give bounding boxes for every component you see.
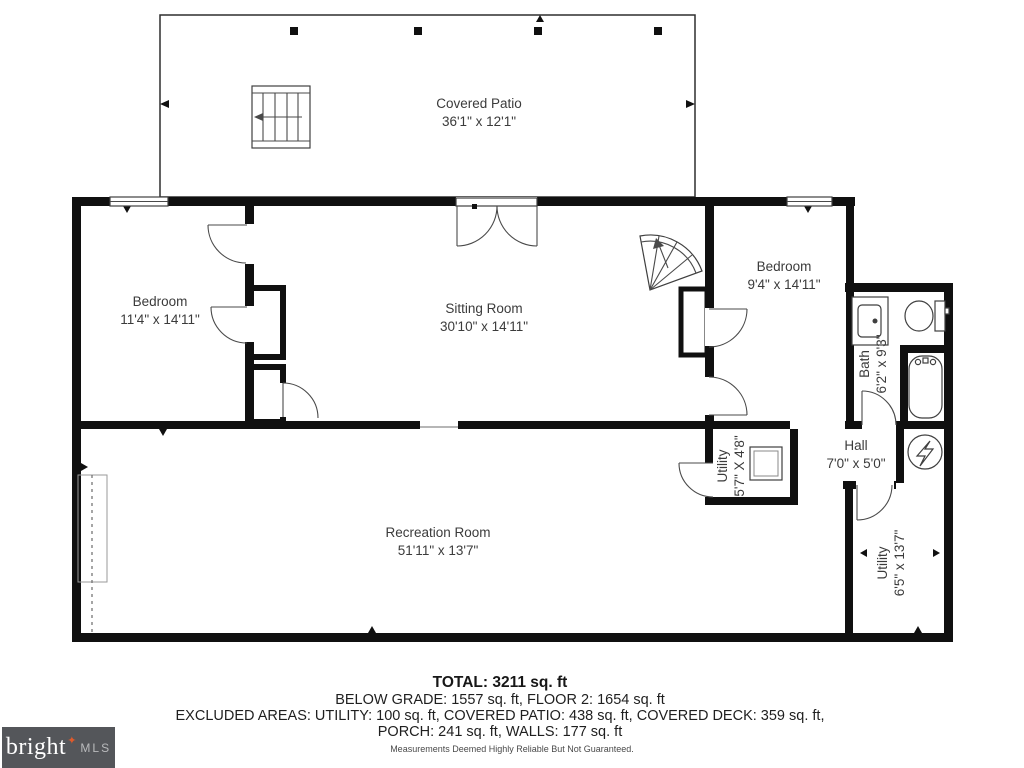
room-name: Covered Patio [436,96,522,111]
room-name: Recreation Room [385,525,490,540]
logo-star-icon: ✦ [67,734,76,747]
area-summary: TOTAL: 3211 sq. ft BELOW GRADE: 1557 sq.… [176,674,825,754]
room-name: Bedroom [133,294,188,309]
hall-label: Hall 7'0" x 5'0" [826,438,885,471]
room-dims: 9'4" x 14'11" [747,277,820,292]
bath-door-icon [862,391,896,429]
sitting-room-label: Sitting Room 30'10" x 14'11" [440,301,528,334]
porch-walls-text: PORCH: 241 sq. ft, WALLS: 177 sq. ft [378,724,622,740]
recreation-room-label: Recreation Room 51'11" x 13'7" [385,525,490,558]
washer-icon [750,447,782,480]
room-name: Hall [844,438,867,453]
room-dims: 11'4" x 14'11" [120,312,200,327]
floor-plan-drawing: Covered Patio 36'1" x 12'1" [0,0,1024,768]
utility-small-door-icon [679,463,713,497]
room-name: Bath [857,350,872,378]
utility-small-label: Utility 5'7" X 4'8" [715,435,747,496]
logo-suffix-text: MLS [80,741,111,755]
disclaimer-text: Measurements Deemed Highly Reliable But … [390,744,634,754]
room-dims: 6'5" x 13'7" [892,530,907,597]
bedroom-left-label: Bedroom 11'4" x 14'11" [120,294,200,327]
bedroom-right-label: Bedroom 9'4" x 14'11" [747,259,820,292]
walls [72,197,953,642]
patio-post [414,27,422,35]
room-dims: 51'11" x 13'7" [398,543,479,558]
floor-plan-page: Covered Patio 36'1" x 12'1" [0,0,1024,768]
grade-area-text: BELOW GRADE: 1557 sq. ft, FLOOR 2: 1654 … [335,692,665,708]
room-name: Utility [875,546,890,579]
closet [251,367,318,422]
patio-post [534,27,542,35]
room-name: Sitting Room [445,301,522,316]
window [110,197,168,206]
toilet-icon [905,301,949,331]
excluded-area-text: EXCLUDED AREAS: UTILITY: 100 sq. ft, COV… [176,708,825,724]
closet [681,289,707,355]
room-dims: 36'1" x 12'1" [442,114,516,129]
room-dims: 5'7" X 4'8" [732,435,747,496]
bedroom-right-door-icon [705,377,747,415]
winder-stairs-icon [640,235,702,290]
room-name: Utility [715,449,730,482]
stairs-icon [252,86,310,148]
bright-mls-logo: bright✦MLS [2,727,115,768]
logo-brand-text: bright [6,734,66,761]
patio-post [290,27,298,35]
covered-patio-label: Covered Patio 36'1" x 12'1" [436,96,522,129]
french-door-icon [456,197,537,246]
room-dims: 6'2" x 9'3" [874,334,889,393]
total-area-text: TOTAL: 3211 sq. ft [433,674,568,691]
utility-large-label: Utility 6'5" x 13'7" [875,530,907,597]
room-name: Bedroom [757,259,812,274]
bathtub-icon [909,356,942,418]
hall-utility-door-icon [856,481,894,520]
window [787,197,832,206]
room-dims: 7'0" x 5'0" [826,456,885,471]
bedroom-left-door-icon [208,224,254,264]
room-dims: 30'10" x 14'11" [440,319,528,334]
patio-post [654,27,662,35]
covered-patio-outline [160,15,695,197]
water-heater-icon [908,435,942,469]
bedroom-right-door-icon [705,308,747,347]
stairs-above-dashed [78,475,107,633]
